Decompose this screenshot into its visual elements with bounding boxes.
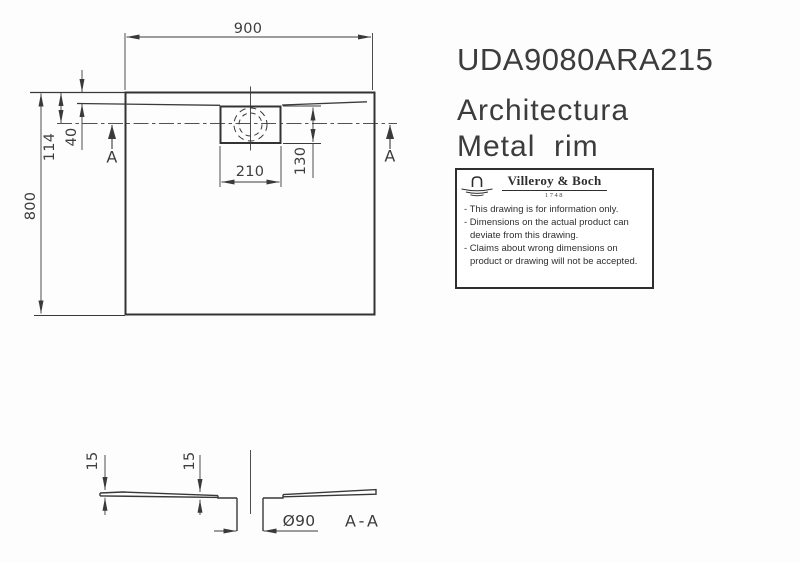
article-number: UDA9080ARA215 [457,42,713,78]
note-line: deviate from this drawing. [464,229,648,242]
dim-label-900: 900 [234,21,263,37]
dim-label-40: 40 [64,127,80,146]
brand-name: Villeroy & Boch [502,173,606,191]
dim-label-15-mid: 15 [182,451,198,470]
note-line: product or drawing will not be accepted. [464,255,648,268]
dim-label-800: 800 [23,192,39,221]
dim-label-130: 130 [293,147,309,176]
plan-view [30,33,397,316]
section-marker-a-right: A [384,147,395,166]
drawing-linework [0,0,800,563]
section-view [100,450,376,531]
manufacturer-info-box: Villeroy & Boch 1748 - This drawing is f… [455,168,654,289]
villeroy-boch-arch-icon [457,175,497,201]
series-name: Architectura [457,94,629,128]
note-line: - Claims about wrong dimensions on [464,242,648,255]
dim-label-15-left: 15 [85,451,101,470]
section-view-label: A-A [345,512,381,531]
dim-label-drain-diameter: Ø90 [283,512,316,530]
dim-label-210: 210 [236,164,265,180]
technical-drawing-page: 900 800 114 40 210 130 A A 15 15 Ø90 A-A… [0,0,800,563]
section-marker-a-left: A [106,148,117,167]
note-line: - Dimensions on the actual product can [464,216,648,229]
dim-label-114: 114 [42,133,58,162]
section-profile [100,490,376,531]
tray-outline [126,93,375,315]
note-line: - This drawing is for information only. [464,203,648,216]
inner-surface-line-right [282,102,367,105]
inner-surface-line-left [77,104,220,106]
disclaimer-notes: - This drawing is for information only. … [457,203,652,268]
variant-name: Metal rim [457,130,599,164]
